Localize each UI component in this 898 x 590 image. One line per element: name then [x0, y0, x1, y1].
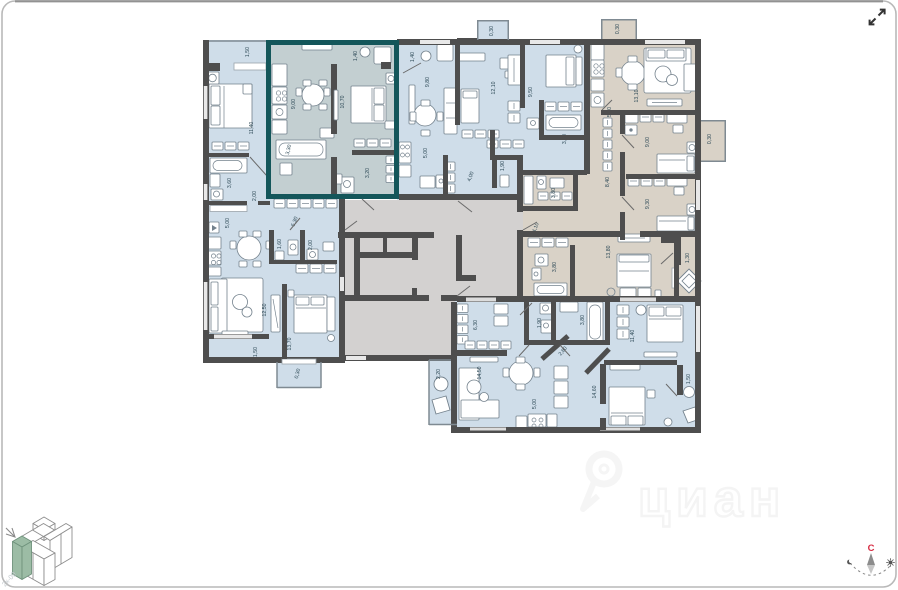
svg-text:1,50: 1,50 [686, 374, 692, 384]
svg-text:1,40: 1,40 [353, 51, 359, 61]
svg-text:3,80: 3,80 [551, 188, 557, 198]
svg-text:1,30: 1,30 [685, 253, 691, 263]
svg-text:9,30: 9,30 [645, 199, 651, 209]
svg-text:0,30: 0,30 [615, 24, 621, 34]
svg-text:1,90: 1,90 [537, 318, 543, 328]
svg-text:С: С [868, 543, 875, 554]
svg-text:5,00: 5,00 [225, 218, 231, 228]
svg-text:0,30: 0,30 [707, 134, 713, 144]
svg-text:3,80: 3,80 [580, 315, 586, 325]
svg-text:5,00: 5,00 [532, 399, 538, 409]
svg-text:11,40: 11,40 [249, 122, 255, 135]
svg-text:13,80: 13,80 [606, 245, 612, 258]
svg-text:1,50: 1,50 [245, 47, 251, 57]
svg-text:8,40: 8,40 [605, 177, 611, 187]
svg-text:циан: циан [638, 470, 786, 528]
svg-text:12,10: 12,10 [491, 81, 497, 94]
svg-text:1,50: 1,50 [253, 347, 259, 357]
svg-text:10,70: 10,70 [340, 95, 346, 108]
svg-text:9,80: 9,80 [425, 77, 431, 87]
svg-text:14,50: 14,50 [477, 366, 483, 379]
svg-text:3,80: 3,80 [552, 262, 558, 272]
svg-text:1,40: 1,40 [410, 52, 416, 62]
svg-text:9,50: 9,50 [528, 87, 534, 97]
svg-text:9,00: 9,00 [291, 99, 297, 109]
svg-text:14,60: 14,60 [592, 385, 598, 398]
svg-text:11,40: 11,40 [630, 330, 636, 343]
svg-text:5,00: 5,00 [423, 148, 429, 158]
svg-text:13,70: 13,70 [287, 337, 293, 350]
svg-text:2,20: 2,20 [436, 369, 442, 379]
svg-text:1,60: 1,60 [277, 239, 283, 249]
svg-text:3,60: 3,60 [227, 178, 233, 188]
svg-text:12,50: 12,50 [262, 303, 268, 316]
svg-text:1,90: 1,90 [500, 161, 506, 171]
svg-text:0,30: 0,30 [489, 26, 495, 36]
svg-text:3,20: 3,20 [365, 168, 371, 178]
svg-text:2,00: 2,00 [252, 191, 258, 201]
svg-text:6,30: 6,30 [473, 320, 479, 330]
svg-text:13,10: 13,10 [634, 89, 640, 102]
svg-text:9,00: 9,00 [645, 137, 651, 147]
svg-text:2,00: 2,00 [308, 240, 314, 250]
